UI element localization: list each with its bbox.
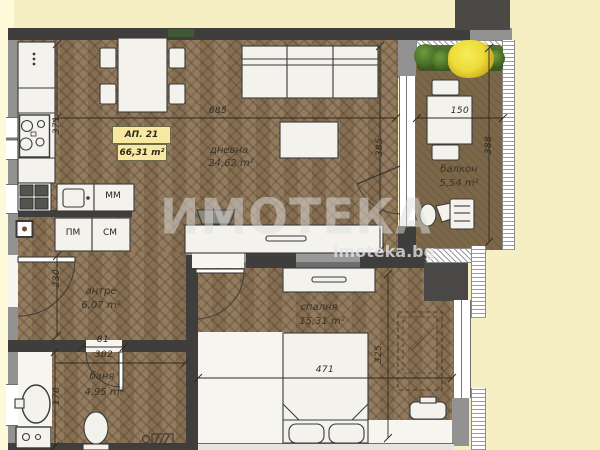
living-room-label: дневна	[199, 145, 259, 156]
electric-panel-icon	[17, 221, 33, 237]
bath-sink-icon	[15, 385, 50, 423]
apartment-area: 66,31 m²	[120, 148, 165, 158]
dim-living-depth: 385	[374, 132, 386, 162]
hall-area: 6,07 m²	[71, 300, 131, 311]
kitchen-grid-unit	[18, 183, 51, 211]
bedroom-door	[196, 269, 244, 319]
bed-icon	[283, 333, 368, 443]
living-room-area: 24,62 m²	[201, 158, 261, 169]
bedroom-area: 15,31 m²	[292, 316, 352, 327]
chair-icon	[432, 145, 459, 160]
balcony-area: 5,54 m²	[429, 178, 489, 189]
bath-washer-icon	[16, 427, 51, 448]
floor-drain-icon	[143, 434, 174, 444]
bedside-table-icon	[410, 397, 446, 419]
fridge-icon	[33, 53, 36, 66]
watermark-brand: ИМОТЕКА	[160, 189, 530, 246]
bedroom-dresser	[283, 268, 375, 292]
dining-table	[100, 38, 185, 112]
coffee-table-icon	[280, 122, 338, 158]
stove-icon	[20, 115, 50, 157]
sofa-icon	[242, 46, 378, 98]
chair-icon	[432, 80, 459, 95]
apartment-number-box: АП. 21	[112, 126, 171, 144]
toilet-icon	[83, 412, 109, 450]
balcony-table-set	[427, 80, 472, 160]
washing-machine-label: СМ	[95, 228, 125, 238]
dim-hall-depth: 230	[51, 263, 63, 293]
balcony-label: балкон	[429, 164, 489, 175]
pillow-icon	[329, 424, 364, 443]
bedroom-label: спалня	[289, 302, 349, 313]
dim-bath-door: 81	[85, 335, 121, 345]
watermark-site: imoteka.bg	[333, 242, 435, 261]
apartment-number: АП. 21	[125, 130, 159, 140]
hall-label: антре	[71, 286, 131, 297]
dim-bath-depth: 170	[51, 381, 63, 411]
pillow-icon	[289, 424, 324, 443]
dim-balcony-depth: 388	[483, 130, 495, 160]
dishwasher-label: ПМ	[58, 228, 88, 238]
floor-plan: АП. 21 66,31 m² дневна 24,62 m² балкон 5…	[0, 0, 600, 450]
bath-area: 4,95 m²	[74, 387, 134, 398]
dim-balcony-width: 150	[442, 106, 478, 116]
kitchen-sink-icon	[57, 184, 94, 211]
chair-icon	[100, 48, 116, 68]
dim-bedroom-width: 471	[307, 365, 343, 375]
chair-icon	[169, 48, 185, 68]
handle-icon	[312, 277, 346, 282]
bath-label: баня	[72, 371, 132, 382]
microwave-label: ММ	[98, 191, 128, 201]
dim-bath-width: 302	[86, 350, 122, 360]
chair-icon	[100, 84, 116, 104]
dim-kitchen-depth: 371	[51, 110, 63, 140]
entrance-door	[18, 257, 75, 316]
dim-living-width: 685	[200, 106, 236, 116]
chair-icon	[169, 84, 185, 104]
dim-bedroom-depth: 325	[373, 339, 385, 369]
apartment-area-box: 66,31 m²	[117, 144, 167, 161]
